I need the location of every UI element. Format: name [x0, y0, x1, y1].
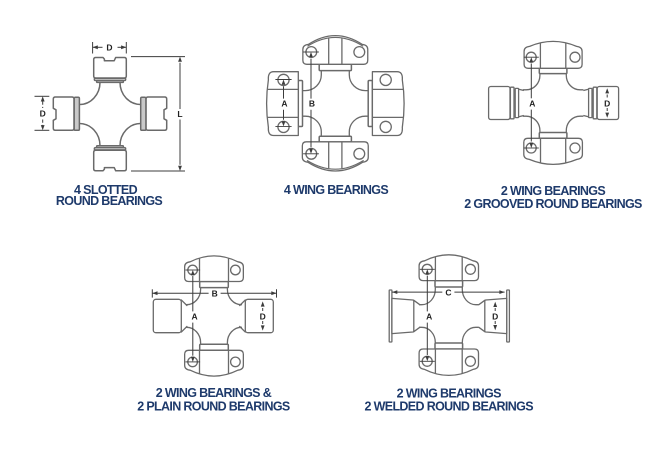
svg-text:D: D [604, 98, 610, 108]
svg-text:A: A [529, 99, 535, 109]
svg-text:4 WING BEARINGS: 4 WING BEARINGS [284, 183, 388, 197]
svg-text:D: D [260, 312, 266, 322]
svg-text:2 WING BEARINGS: 2 WING BEARINGS [397, 386, 501, 400]
svg-text:D: D [492, 312, 498, 322]
svg-text:A: A [281, 99, 287, 109]
svg-text:D: D [40, 109, 46, 119]
svg-text:C: C [445, 288, 451, 298]
svg-text:A: A [426, 312, 432, 322]
svg-text:2 WING BEARINGS: 2 WING BEARINGS [501, 184, 605, 198]
svg-text:2 GROOVED ROUND BEARINGS: 2 GROOVED ROUND BEARINGS [464, 197, 642, 211]
svg-text:B: B [309, 99, 315, 109]
svg-text:A: A [192, 312, 198, 322]
svg-text:ROUND BEARINGS: ROUND BEARINGS [56, 194, 162, 208]
svg-text:L: L [177, 109, 182, 119]
svg-text:2 WELDED ROUND BEARINGS: 2 WELDED ROUND BEARINGS [364, 400, 533, 414]
svg-text:D: D [106, 42, 112, 52]
svg-text:2 PLAIN ROUND BEARINGS: 2 PLAIN ROUND BEARINGS [137, 399, 290, 413]
svg-text:2 WING BEARINGS &: 2 WING BEARINGS & [156, 386, 272, 400]
svg-text:B: B [212, 289, 218, 299]
